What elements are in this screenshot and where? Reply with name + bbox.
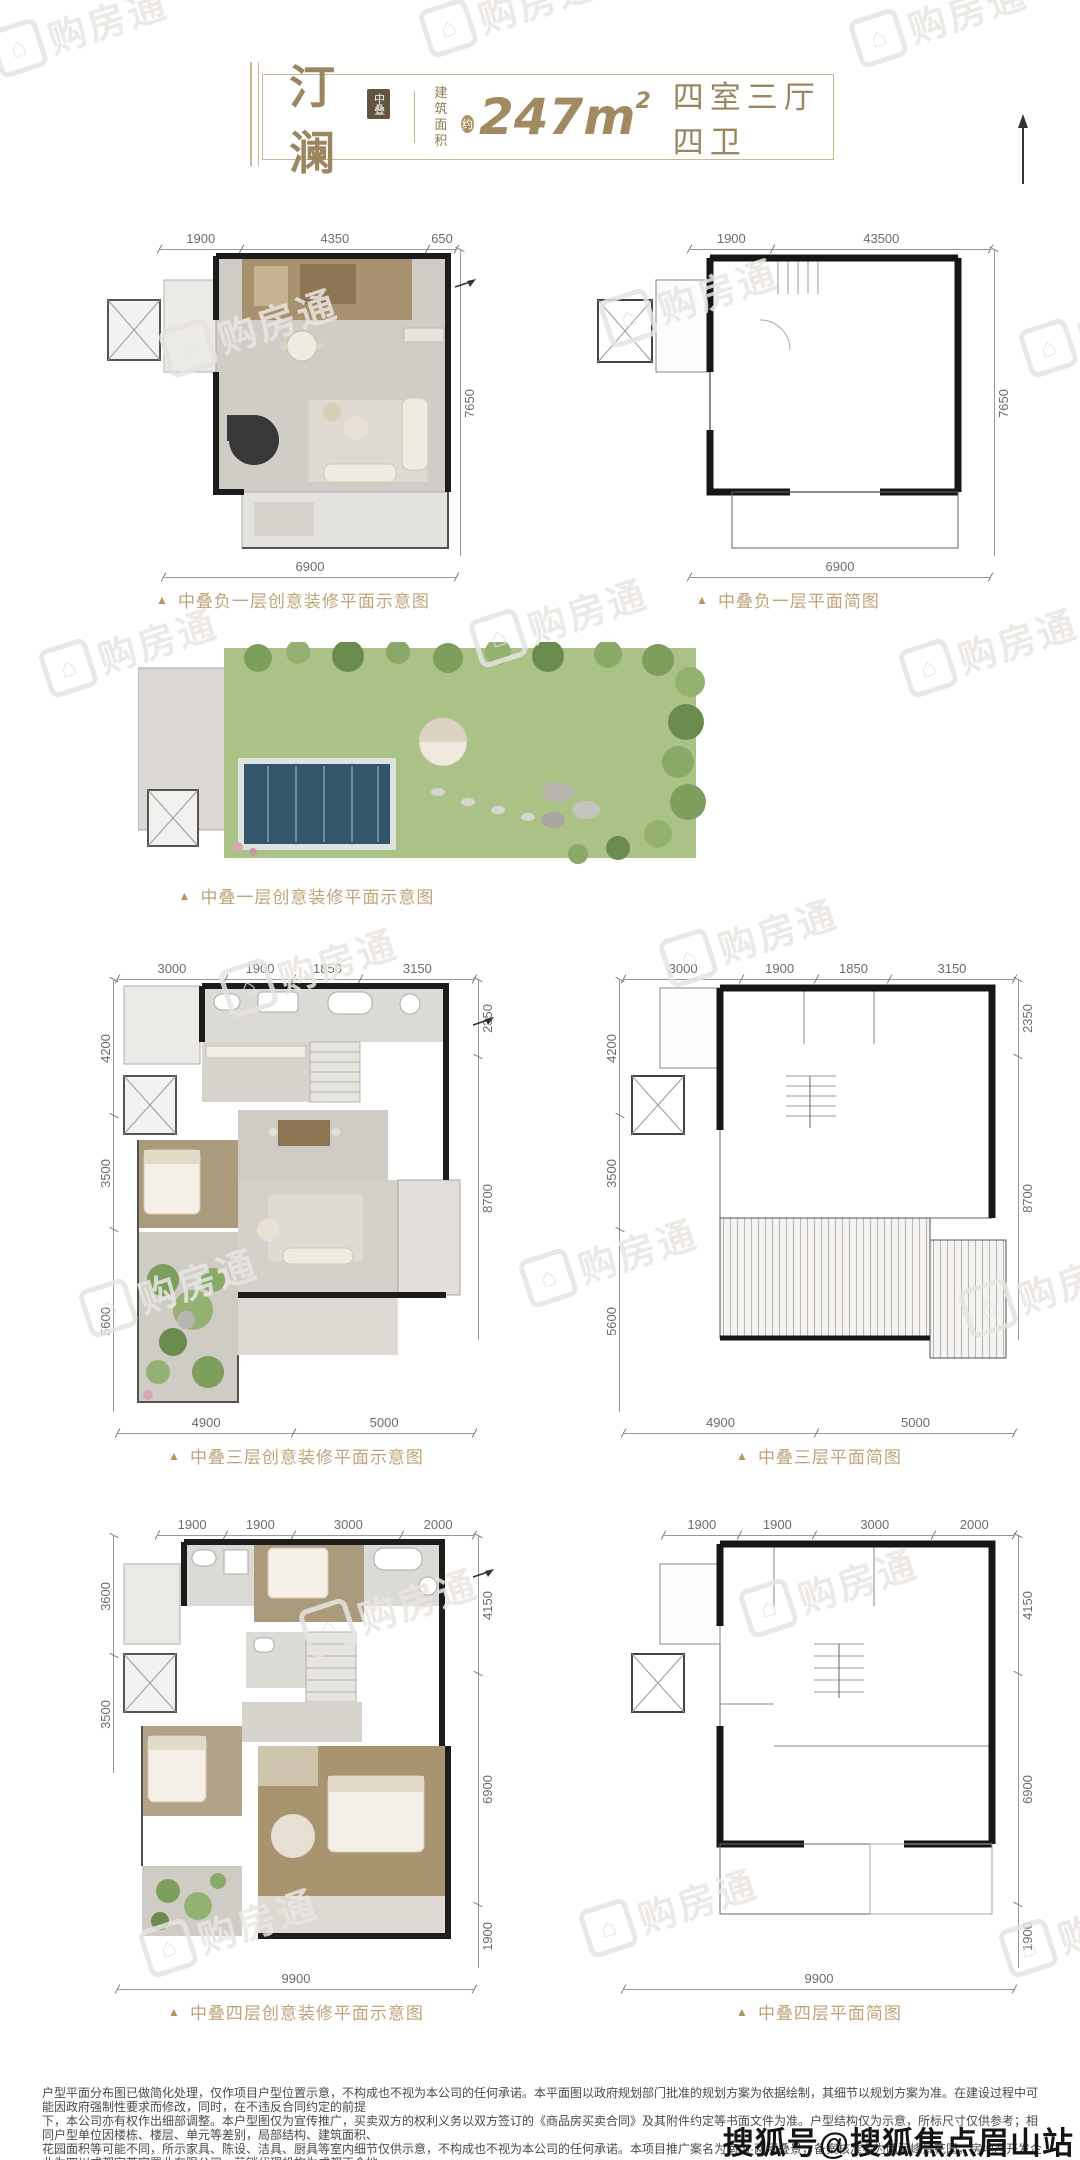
dim-chain-bottom: 4900 5000	[624, 1412, 1014, 1434]
dim-chain-top: 3000 1900 1850 3150	[624, 958, 1014, 980]
dim-label: 3500	[598, 1116, 624, 1230]
dim-label: 1900	[690, 228, 773, 250]
house-icon: ⌂	[0, 16, 50, 79]
house-icon: ⌂	[847, 6, 910, 69]
plan-caption: ▲中叠负一层平面简图	[560, 587, 1016, 612]
dim-label: 6900	[1014, 1674, 1040, 1904]
triangle-marker: ▲	[168, 2005, 181, 2019]
approx-badge: 约	[461, 115, 474, 133]
room-layout-text: 四室三厅四卫	[673, 72, 833, 162]
dim-label: 4900	[624, 1412, 817, 1434]
dim-label: 4900	[118, 1412, 294, 1434]
plan-caption: ▲中叠负一层创意装修平面示意图	[104, 587, 482, 612]
dim-chain-top: 1900 4350 650	[160, 228, 456, 250]
dim-chain-right: 7650	[456, 250, 482, 556]
area-value: 247m2	[479, 88, 651, 146]
dim-chain-bottom: 6900	[164, 556, 456, 578]
dim-chain-top: 3000 1900 1850 3150	[118, 958, 474, 980]
floorplan-f3-simple	[624, 980, 1014, 1412]
floorplan-flyer-page: ⌂购房通 ⌂购房通 ⌂购房通 ⌂购房通 ⌂购房通 ⌂购房通 ⌂购房通 ⌂购房通 …	[0, 0, 1080, 2160]
dim-label: 4200	[92, 980, 118, 1116]
dim-label: 3000	[624, 958, 742, 980]
dim-label: 9900	[624, 1968, 1014, 1990]
watermark: ⌂购房通	[0, 0, 174, 81]
house-icon: ⌂	[897, 636, 960, 699]
dim-label: 3000	[118, 958, 226, 980]
dim-label: 3150	[361, 958, 474, 980]
dim-label: 1900	[664, 1514, 740, 1536]
floorplan-basement-simple	[560, 250, 990, 556]
dim-label: 650	[428, 228, 456, 250]
plan-caption: ▲中叠三层平面简图	[598, 1443, 1040, 1468]
dim-label: 8700	[1014, 1057, 1040, 1341]
triangle-marker: ▲	[179, 889, 192, 903]
dim-label: 3150	[890, 958, 1014, 980]
dim-label: 5000	[817, 1412, 1014, 1434]
plan-block-f4-decorated: 1900 1900 3000 2000 3600 3500	[92, 1514, 500, 2024]
triangle-marker: ▲	[168, 1449, 181, 1463]
dim-chain-bottom: 9900	[624, 1968, 1014, 1990]
dim-label: 7650	[456, 250, 482, 556]
dim-label: 1900	[160, 228, 242, 250]
plan-block-garden: ▲中叠一层创意装修平面示意图	[138, 642, 710, 908]
sohu-account-badge: 搜狐号@搜狐焦点眉山站	[723, 2118, 1074, 2160]
north-arrow-icon	[472, 1566, 496, 1585]
dim-chain-right: 2350 8700	[474, 980, 500, 1412]
dim-chain-bottom: 6900	[690, 556, 990, 578]
dim-label: 8700	[474, 1057, 500, 1341]
triangle-marker: ▲	[696, 593, 709, 607]
plan-block-f3-simple: 3000 1900 1850 3150 4200 3500 5600	[598, 958, 1040, 1468]
unit-type-badge: 中叠	[367, 89, 390, 119]
dim-label: 6900	[164, 556, 456, 578]
floorplan-f4-decorated	[118, 1536, 474, 1968]
dim-label: 3500	[92, 1656, 118, 1773]
floorplan-f3-decorated	[118, 980, 474, 1412]
plan-caption: ▲中叠三层创意装修平面示意图	[92, 1443, 500, 1468]
dim-label: 1900	[226, 958, 294, 980]
area-label: 建筑 面积	[434, 85, 456, 149]
dim-chain-bottom: 4900 5000	[118, 1412, 474, 1434]
area-exponent: 2	[635, 89, 650, 114]
dim-label: 4150	[1014, 1536, 1040, 1674]
dim-label: 1900	[1014, 1905, 1040, 1968]
plan-caption: ▲中叠四层平面简图	[598, 1999, 1040, 2024]
dim-label: 5000	[294, 1412, 474, 1434]
dim-chain-left: 4200 3500 5600	[92, 980, 118, 1412]
north-arrow-icon	[454, 276, 478, 295]
dim-label: 1900	[158, 1514, 226, 1536]
house-icon: ⌂	[37, 636, 100, 699]
dim-label: 1900	[474, 1905, 500, 1968]
plan-block-basement-simple: 1900 43500	[560, 228, 1016, 612]
dim-label: 6900	[474, 1674, 500, 1904]
dim-label: 9900	[118, 1968, 474, 1990]
north-arrow-icon	[472, 1014, 496, 1033]
dim-chain-top: 1900 1900 3000 2000	[664, 1514, 1014, 1536]
dim-label: 5600	[598, 1230, 624, 1412]
dim-label: 7650	[990, 250, 1016, 556]
dim-label: 4350	[242, 228, 429, 250]
house-icon: ⌂	[517, 1246, 580, 1309]
dim-label: 2350	[1014, 980, 1040, 1057]
disclaimer-line: 户型平面分布图已做简化处理，仅作项目户型位置示意，不构成也不视为本公司的任何承诺…	[42, 2086, 1044, 2114]
dim-chain-top: 1900 43500	[690, 228, 990, 250]
header-left-ornament	[250, 62, 259, 166]
floorplan-garden-decorated	[138, 642, 710, 874]
watermark: ⌂购房通	[1016, 274, 1080, 382]
dim-label: 1900	[226, 1514, 294, 1536]
dim-label: 43500	[773, 228, 990, 250]
dim-chain-left: 3600 3500	[92, 1536, 118, 1968]
north-arrow-icon	[1016, 112, 1030, 191]
dim-label: 1850	[817, 958, 890, 980]
dim-label: 3000	[815, 1514, 934, 1536]
floorplan-basement-decorated	[104, 250, 456, 556]
dim-chain-bottom: 9900	[118, 1968, 474, 1990]
house-icon: ⌂	[1017, 316, 1080, 379]
triangle-marker: ▲	[736, 2005, 749, 2019]
floorplan-f4-simple	[624, 1536, 1014, 1968]
triangle-marker: ▲	[156, 593, 169, 607]
dim-chain-right: 7650	[990, 250, 1016, 556]
dim-chain-top: 1900 1900 3000 2000	[158, 1514, 474, 1536]
plan-caption: ▲中叠四层创意装修平面示意图	[92, 1999, 500, 2024]
dim-chain-right: 4150 6900 1900	[474, 1536, 500, 1968]
dim-label: 4150	[474, 1536, 500, 1674]
plan-block-f4-simple: 1900 1900 3000 2000	[598, 1514, 1040, 2024]
plan-block-basement-decorated: 1900 4350 650	[104, 228, 482, 612]
plan-block-f3-decorated: 3000 1900 1850 3150 4200 3500 5600	[92, 958, 500, 1468]
watermark: ⌂购房通	[416, 0, 604, 61]
dim-chain-left: 4200 3500 5600	[598, 980, 624, 1412]
dim-label: 5600	[92, 1230, 118, 1412]
dim-label: 2000	[934, 1514, 1014, 1536]
dim-chain-right: 2350 8700	[1014, 980, 1040, 1412]
house-icon: ⌂	[417, 0, 480, 59]
unit-header: 汀澜 中叠 建筑 面积 约 247m2 四室三厅四卫	[262, 74, 834, 160]
dim-chain-right: 4150 6900 1900	[1014, 1536, 1040, 1968]
dim-label: 3600	[92, 1536, 118, 1656]
dim-label: 1900	[740, 1514, 816, 1536]
dim-label: 1850	[294, 958, 361, 980]
plan-caption: ▲中叠一层创意装修平面示意图	[138, 883, 710, 908]
dim-label: 6900	[690, 556, 990, 578]
watermark: ⌂购房通	[846, 0, 1034, 71]
dim-label: 1900	[742, 958, 817, 980]
dim-label: 2000	[402, 1514, 474, 1536]
unit-name: 汀澜	[289, 51, 363, 183]
dim-label: 3500	[92, 1116, 118, 1230]
header-divider	[414, 91, 415, 143]
dim-label: 4200	[598, 980, 624, 1116]
triangle-marker: ▲	[736, 1449, 749, 1463]
dim-label: 3000	[294, 1514, 402, 1536]
